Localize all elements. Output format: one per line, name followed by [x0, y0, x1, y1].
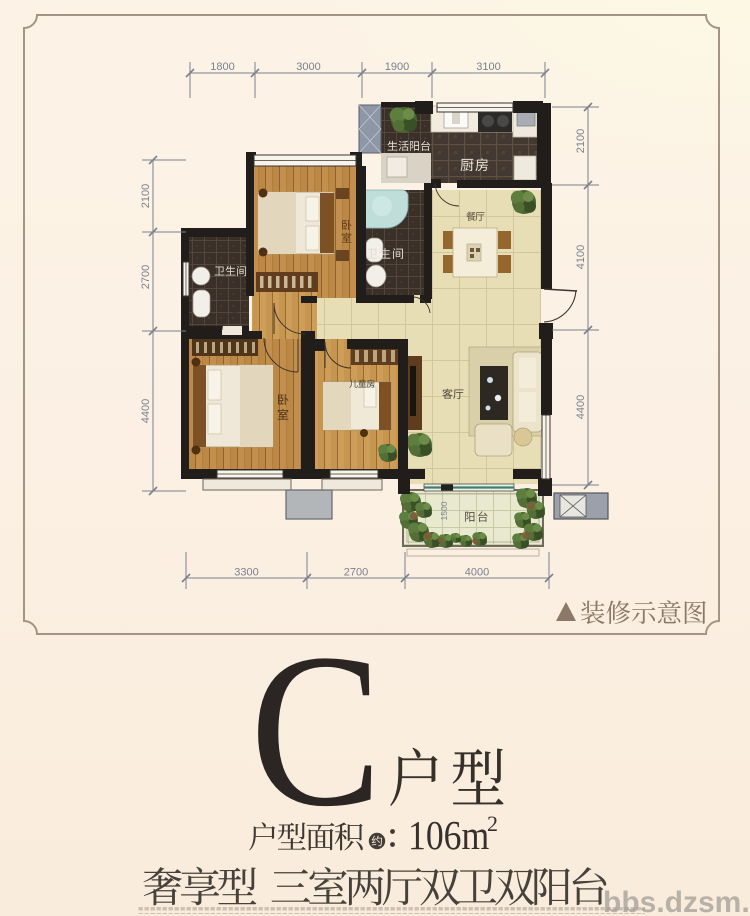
svg-text:2100: 2100 — [575, 129, 587, 153]
svg-text:2100: 2100 — [140, 184, 152, 208]
svg-text:C: C — [250, 610, 382, 853]
svg-text:1900: 1900 — [385, 61, 409, 73]
svg-text:1500: 1500 — [439, 501, 449, 520]
svg-text:3100: 3100 — [476, 61, 500, 73]
svg-text:4400: 4400 — [575, 395, 587, 419]
svg-text:1800: 1800 — [210, 61, 234, 73]
svg-text:4100: 4100 — [575, 245, 587, 269]
svg-text:3000: 3000 — [296, 61, 320, 73]
svg-text:106m: 106m — [408, 814, 489, 859]
svg-text:2700: 2700 — [140, 265, 152, 289]
svg-text:2: 2 — [487, 811, 498, 836]
svg-text:4400: 4400 — [140, 399, 152, 423]
svg-text:4000: 4000 — [465, 567, 489, 579]
svg-text:2700: 2700 — [344, 567, 368, 579]
svg-text:3300: 3300 — [234, 567, 258, 579]
